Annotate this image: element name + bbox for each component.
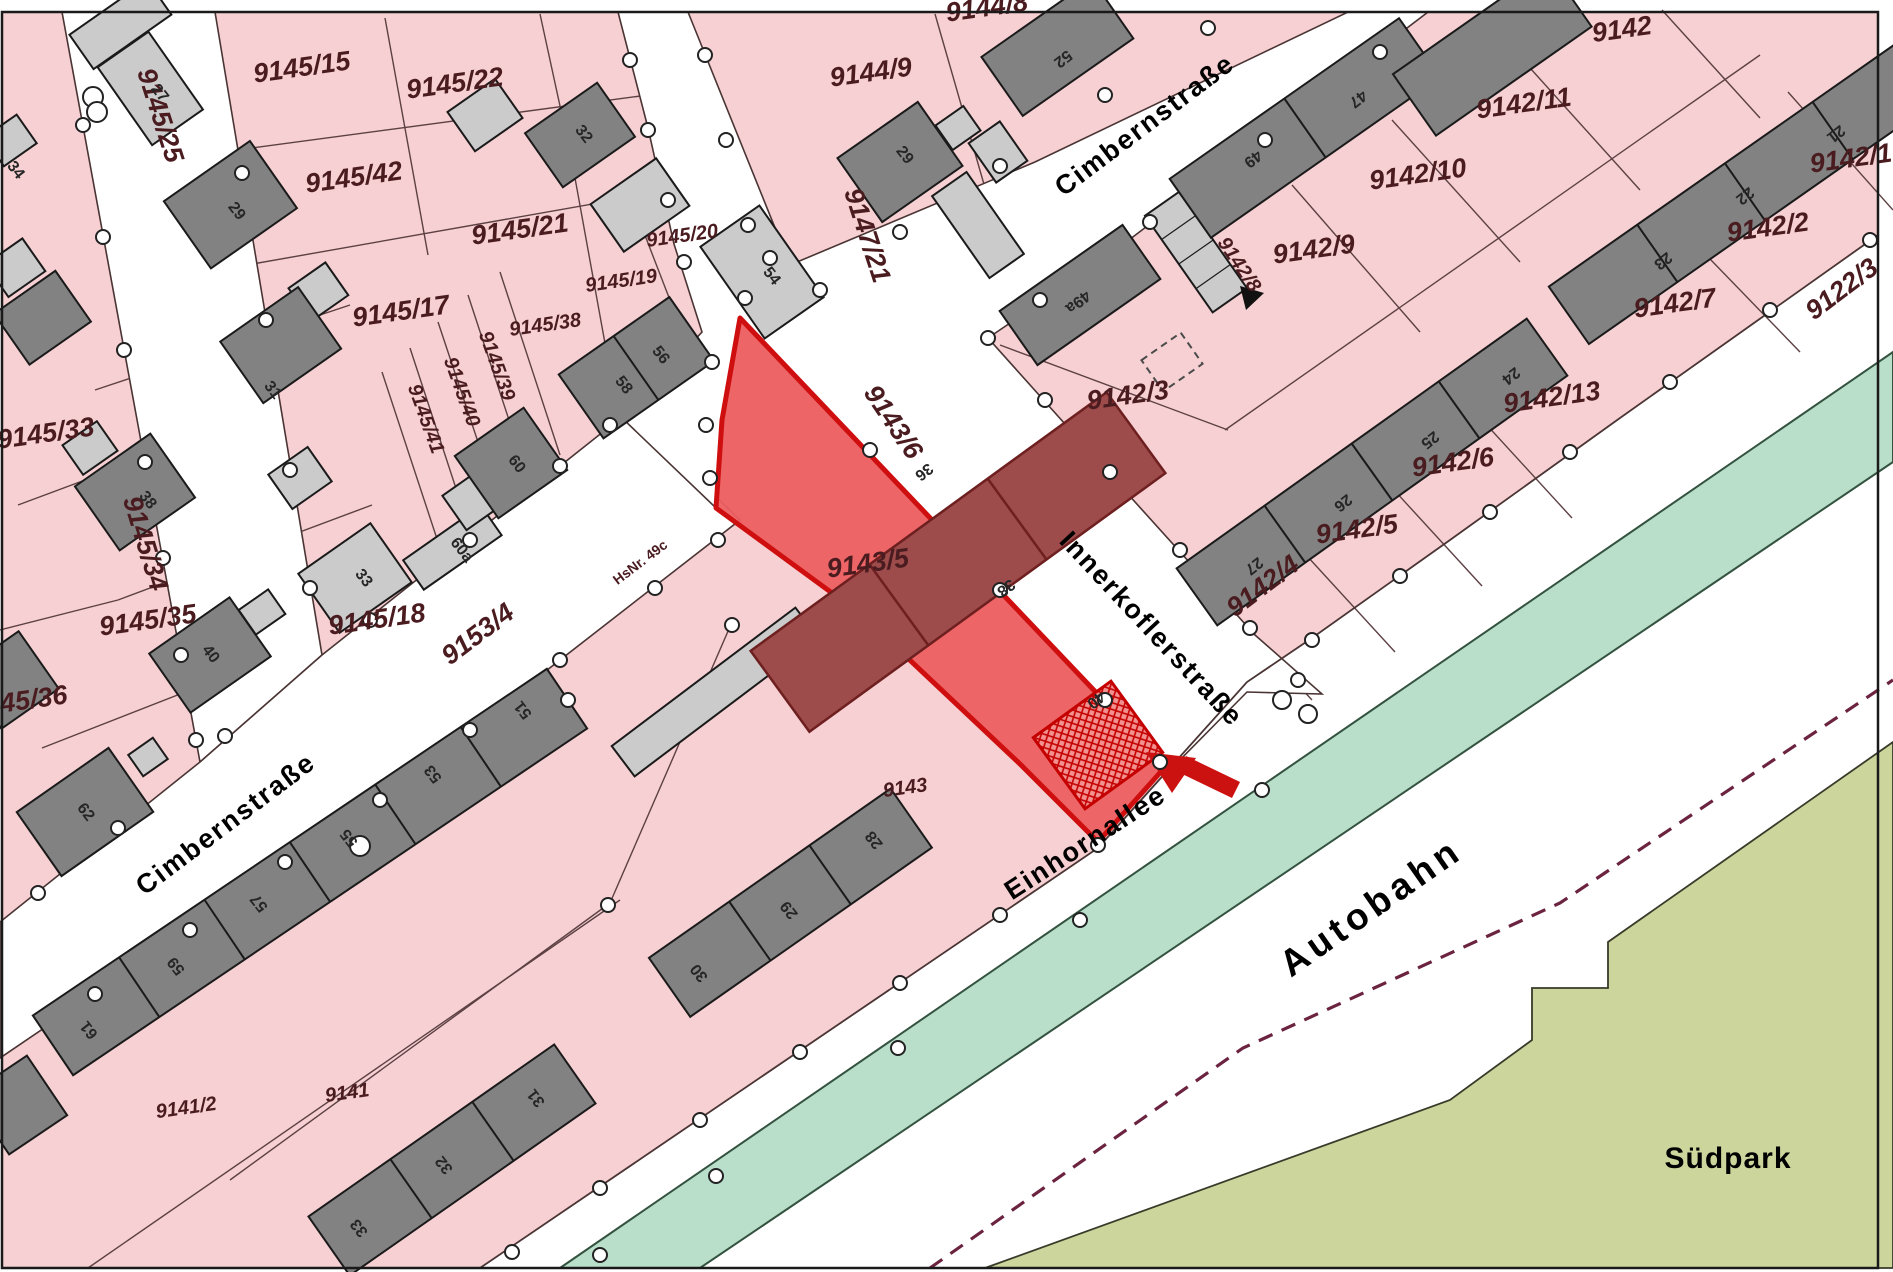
boundary-dot [1243,621,1257,635]
boundary-dot [893,976,907,990]
boundary-dot [1103,465,1117,479]
boundary-dot [593,1181,607,1195]
boundary-dot [1173,543,1187,557]
boundary-dot [1483,505,1497,519]
boundary-dot [218,729,232,743]
boundary-dot [703,471,717,485]
boundary-dot [863,443,877,457]
boundary-dot [677,255,691,269]
boundary-dot [593,1248,607,1262]
boundary-dot [138,455,152,469]
boundary-dot [981,331,995,345]
boundary-dot [31,886,45,900]
boundary-dot [373,793,387,807]
boundary-dot [259,313,273,327]
boundary-dot [278,855,292,869]
boundary-dot [76,118,90,132]
boundary-dot [235,166,249,180]
boundary-dot [87,102,107,122]
boundary-dot [1663,375,1677,389]
boundary-dot [189,733,203,747]
boundary-dot [601,898,615,912]
boundary-dot [738,291,752,305]
boundary-dot [1098,88,1112,102]
boundary-dot [1563,445,1577,459]
boundary-dot [117,343,131,357]
boundary-dot [725,618,739,632]
boundary-dot [553,653,567,667]
map-canvas: 9145/259145/159145/229145/429145/219145/… [0,0,1893,1272]
boundary-dot [1258,133,1272,147]
boundary-dot [463,723,477,737]
boundary-dot [693,1113,707,1127]
boundary-dot [993,908,1007,922]
boundary-dot [561,693,575,707]
boundary-dot [1073,913,1087,927]
boundary-dot [111,821,125,835]
boundary-dot [709,1169,723,1183]
boundary-dot [1763,303,1777,317]
boundary-dot [1255,783,1269,797]
boundary-dot [283,463,297,477]
boundary-dot [96,230,110,244]
boundary-dot [603,418,617,432]
boundary-dot [1153,755,1167,769]
boundary-dot [174,648,188,662]
cadastral-map: 9145/259145/159145/229145/429145/219145/… [0,0,1893,1272]
boundary-dot [623,53,637,67]
boundary-dot [741,218,755,232]
boundary-dot [793,1045,807,1059]
boundary-dot [1201,21,1215,35]
boundary-dot [1273,691,1291,709]
boundary-dot [1305,633,1319,647]
boundary-dot [1143,215,1157,229]
boundary-dot [763,251,777,265]
boundary-dot [993,159,1007,173]
boundary-dot [88,987,102,1001]
boundary-dot [661,193,675,207]
boundary-dot [303,581,317,595]
boundary-dot [719,133,733,147]
street-name-s-dpark-5: Südpark [1664,1142,1791,1175]
boundary-dot [1373,45,1387,59]
boundary-dot [698,48,712,62]
boundary-dot [711,533,725,547]
boundary-dot [891,1041,905,1055]
boundary-dot [1863,233,1877,247]
boundary-dot [1393,569,1407,583]
boundary-dot [553,459,567,473]
boundary-dot [505,1245,519,1259]
boundary-dot [813,283,827,297]
boundary-dot [648,581,662,595]
boundary-dot [641,123,655,137]
boundary-dot [1291,673,1305,687]
boundary-dot [893,225,907,239]
boundary-dot [183,923,197,937]
boundary-dot [705,355,719,369]
boundary-dot [699,418,713,432]
boundary-dot [1038,393,1052,407]
boundary-dot [1033,293,1047,307]
boundary-dot [1299,705,1317,723]
